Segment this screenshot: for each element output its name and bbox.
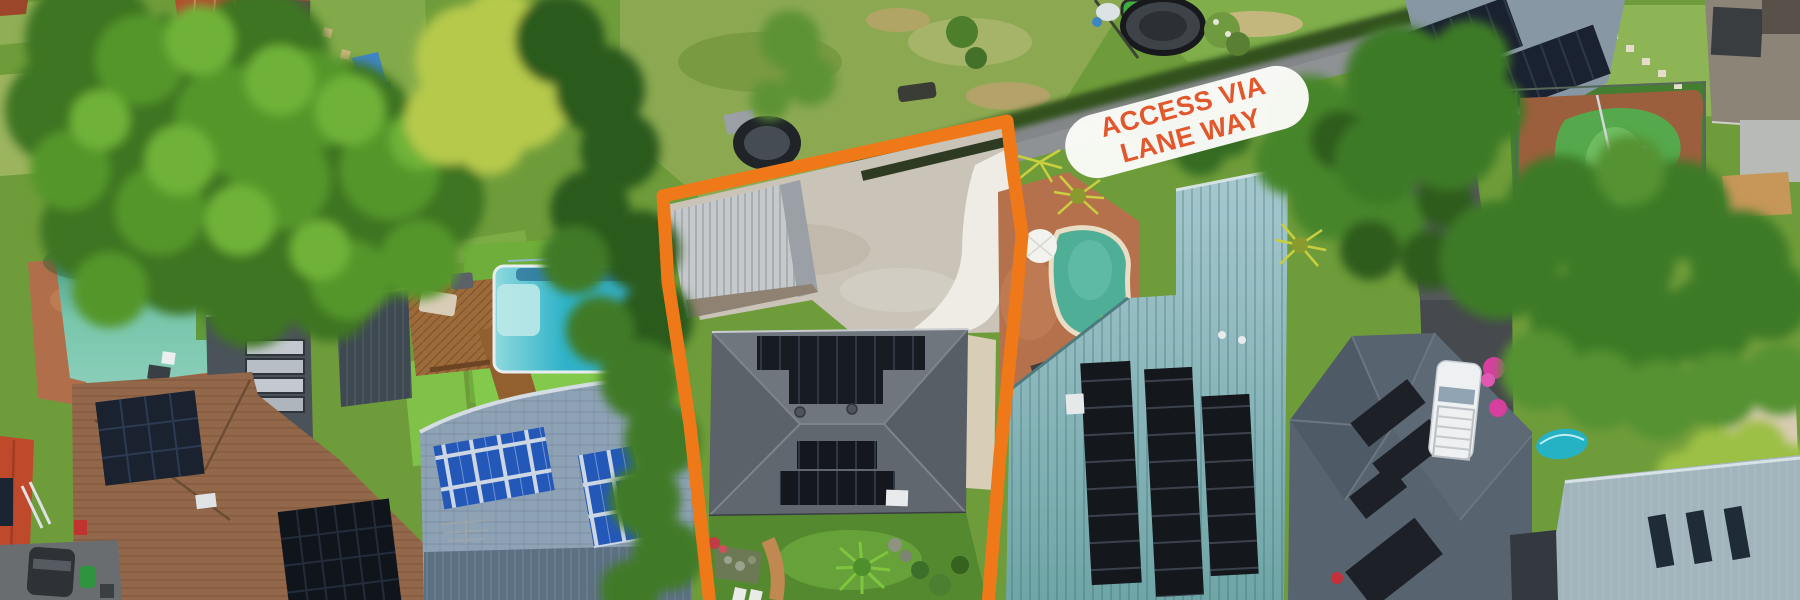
palm-centre — [1292, 237, 1308, 253]
dark-shed — [1510, 530, 1558, 600]
red-ball — [1331, 572, 1343, 584]
aerial-photo: ACCESS VIA LANE WAY — [0, 0, 1800, 600]
teal-roof-solar-strips — [1080, 361, 1258, 597]
concrete-pad — [1740, 120, 1800, 182]
roof-vent — [847, 404, 857, 414]
green-wheelie-bin — [80, 566, 95, 588]
pool-chair — [161, 351, 176, 365]
solar-array-large — [278, 499, 403, 600]
far-right-top-building — [1705, 0, 1800, 128]
roof-vent — [795, 407, 805, 417]
palm-centre — [1070, 188, 1086, 204]
white-ute — [1428, 360, 1482, 460]
red-bin — [74, 520, 87, 535]
subject-front-lawn — [708, 513, 987, 600]
main-house-roof — [709, 329, 996, 516]
solar-array-navy — [95, 390, 204, 486]
eave-paving-strip — [966, 335, 996, 490]
parked-car — [26, 546, 75, 597]
